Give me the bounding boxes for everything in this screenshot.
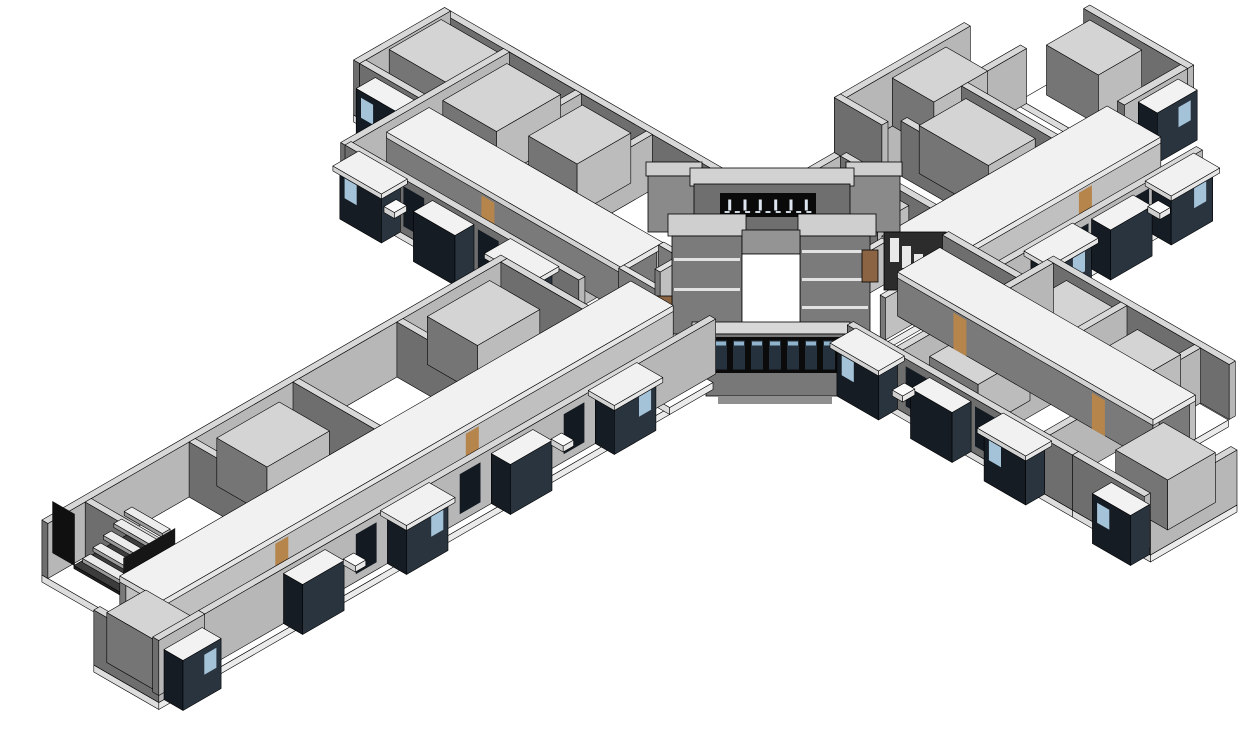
core-back-mullions — [728, 200, 731, 211]
connector-wall — [880, 295, 885, 340]
core-roof-band — [690, 168, 854, 186]
core-back-mullions — [790, 200, 793, 211]
core-back-mullions — [725, 211, 730, 213]
corridor-wall — [1189, 399, 1195, 443]
wing-se-wall-far — [1229, 361, 1235, 420]
core-back-mullions — [796, 211, 801, 213]
door — [1092, 393, 1105, 437]
core-back-mullions — [755, 211, 760, 213]
core-front-glints — [716, 342, 726, 346]
core-shaft-roof — [668, 214, 746, 236]
core-back-mullions — [806, 211, 811, 213]
core-floor-line — [802, 278, 868, 281]
core-back-mullions — [745, 211, 750, 213]
core-bridge — [742, 230, 800, 254]
core-front-glints — [734, 342, 744, 346]
viewport-canvas[interactable] — [0, 0, 1248, 738]
core-side-block-roof — [846, 162, 902, 176]
core-front-glints — [752, 342, 762, 346]
core-back-mullions — [774, 200, 777, 211]
model-viewport — [0, 0, 1248, 738]
core-front-glints — [806, 342, 816, 346]
core-back-mullions — [744, 200, 747, 211]
wing-sw-wall-tip-side — [153, 637, 159, 696]
wing-sw-wall-far — [42, 520, 48, 579]
core-front-glints — [788, 342, 798, 346]
core-back-mullions — [786, 211, 791, 213]
core-floor-line — [674, 288, 740, 291]
core-back-mullions — [759, 200, 762, 211]
core-lightwell — [742, 254, 800, 332]
core-stoop — [718, 396, 832, 404]
core-back-window-band — [720, 193, 816, 217]
core-floor-line — [802, 306, 868, 309]
door — [953, 313, 966, 357]
core-shaft-roof — [798, 214, 876, 236]
core-back-mullions — [735, 211, 740, 213]
core-back-mullions — [766, 211, 771, 213]
stair-step — [890, 238, 899, 262]
door — [862, 250, 878, 282]
core-floor-line — [802, 250, 868, 253]
core-back-mullions — [805, 200, 808, 211]
core-back-mullions — [776, 211, 781, 213]
core-floor-line — [674, 258, 740, 261]
core-front-glints — [770, 342, 780, 346]
